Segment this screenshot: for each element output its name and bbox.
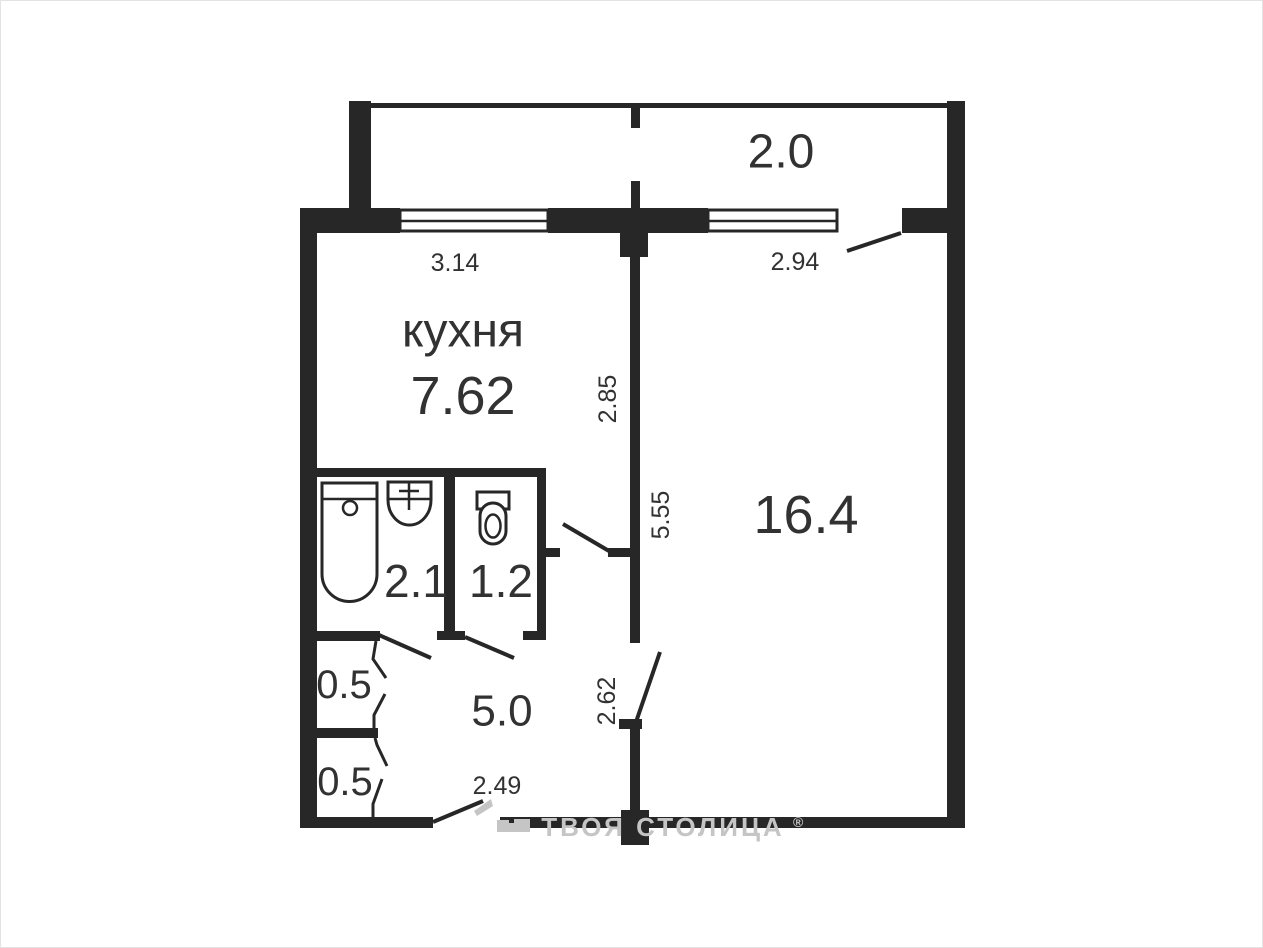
closet-divider-wall	[303, 728, 378, 738]
kitchen-living-divider-lower	[630, 723, 640, 817]
sink	[388, 482, 431, 525]
bathroom-door-swing	[379, 635, 431, 658]
closet-top-accordion-upper	[373, 641, 386, 678]
balcony-left-pillar	[349, 101, 371, 208]
dim-hall-width: 2.49	[473, 772, 522, 800]
balcony-door-swing	[847, 233, 901, 251]
wc-area-label: 1.2	[469, 555, 533, 607]
bathroom-bottom-wall	[303, 631, 380, 641]
watermark-registered-icon: ®	[793, 814, 804, 830]
toilet	[477, 492, 509, 544]
closet-bottom-accordion-upper	[375, 738, 387, 766]
kitchen-door-stub-left	[546, 548, 560, 557]
dim-living-window: 2.94	[771, 248, 820, 276]
watermark-brand-text: ТВОЯ СТОЛИЦА	[541, 812, 784, 842]
top-wall-middle-segment	[548, 208, 708, 233]
bathtub	[322, 483, 377, 602]
kitchen-area-label: 7.62	[410, 366, 515, 426]
balcony-structure	[349, 101, 948, 208]
dim-living-depth: 5.55	[647, 491, 675, 540]
kitchen-name-label: кухня	[402, 305, 524, 358]
closet-bottom-accordion-lower	[373, 779, 382, 817]
living-room-area-label: 16.4	[753, 485, 858, 545]
bathroom-area-label: 2.1	[384, 555, 448, 607]
dim-kitchen-depth: 2.85	[594, 375, 622, 424]
floorplan-drawing: 2.0 кухня 7.62 16.4 2.1 1.2 5.0 0.5 0.5 …	[0, 0, 1263, 948]
wc-door-swing	[465, 637, 514, 658]
floorplan-page: 2.0 кухня 7.62 16.4 2.1 1.2 5.0 0.5 0.5 …	[0, 0, 1263, 948]
right-wall	[947, 101, 965, 828]
living-room-door-swing	[636, 652, 660, 722]
balcony-area-label: 2.0	[748, 126, 815, 179]
balcony-divider-top-stub	[631, 103, 640, 128]
kitchen-living-divider-upper	[630, 233, 640, 643]
hall-area-label: 5.0	[471, 687, 532, 736]
closet-top-area-label: 0.5	[316, 663, 372, 707]
dim-kitchen-window: 3.14	[431, 249, 480, 277]
bathroom-top-wall	[317, 468, 545, 477]
dim-living-lower: 2.62	[593, 677, 621, 726]
wc-right-wall	[537, 468, 546, 640]
balcony-top-wall	[349, 103, 948, 108]
balcony-divider-bottom-stub	[631, 181, 640, 208]
closet-top-accordion-lower	[374, 694, 385, 728]
wc-bottom-foot	[523, 631, 543, 640]
closet-bottom-area-label: 0.5	[317, 760, 373, 804]
bath-wc-divider-foot	[437, 631, 465, 640]
kitchen-door-swing	[563, 524, 609, 551]
bottom-wall-left-segment	[300, 817, 433, 828]
kitchen-door-stub-right	[608, 548, 633, 557]
